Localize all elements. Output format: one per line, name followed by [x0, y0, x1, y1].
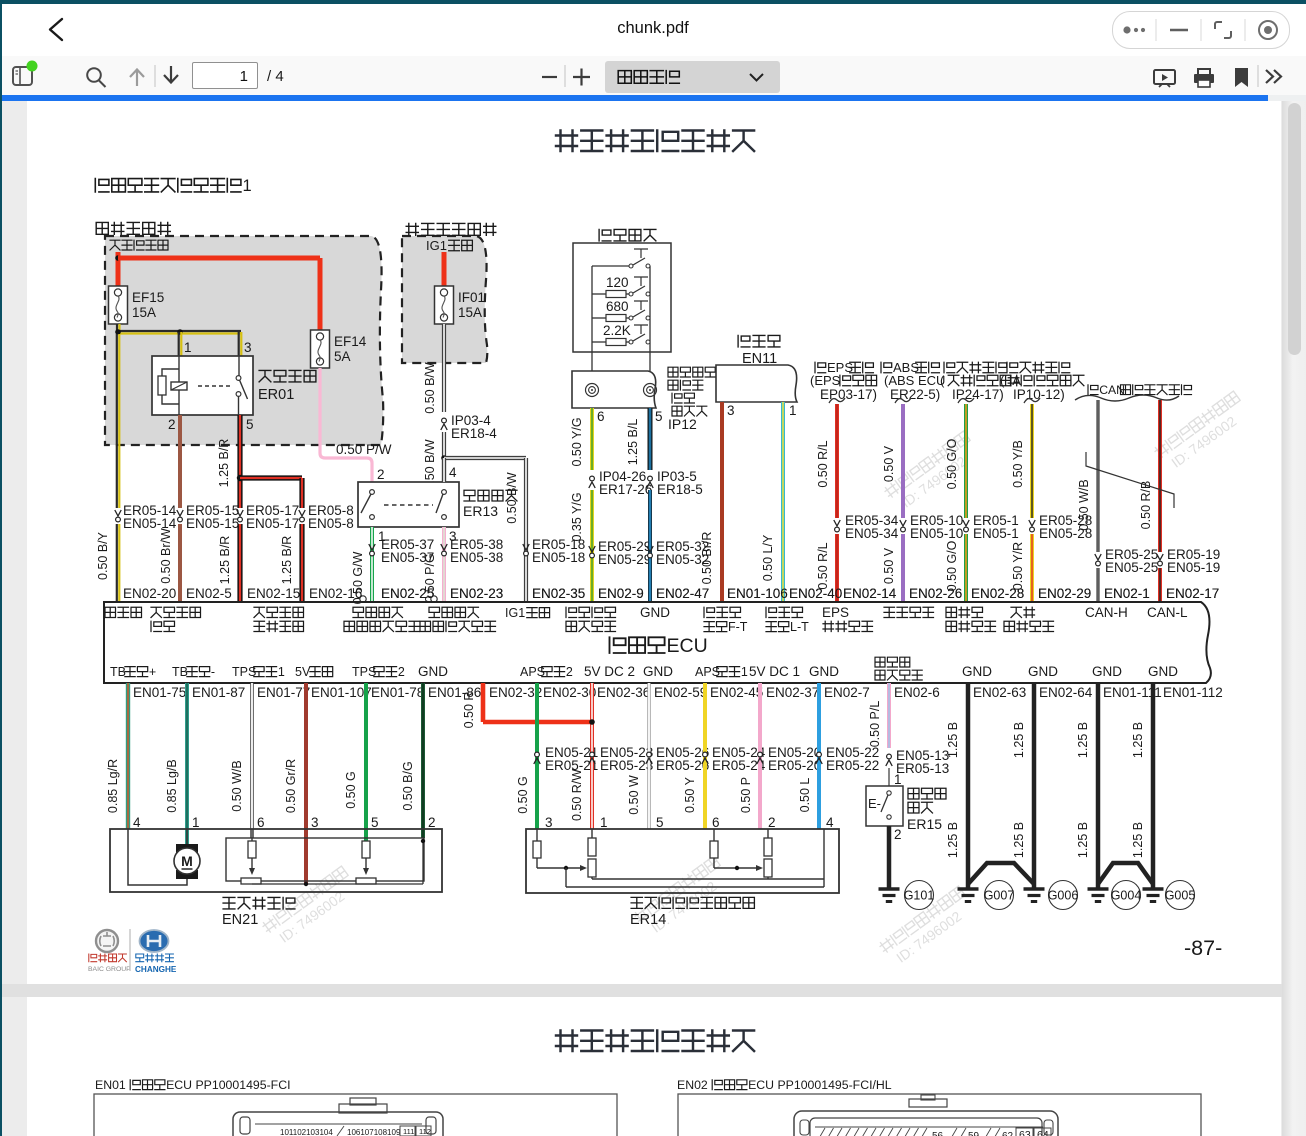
- svg-text:EF14: EF14: [334, 334, 367, 349]
- svg-text:ER15: ER15: [907, 816, 942, 832]
- svg-text:0.85 Lg/B: 0.85 Lg/B: [165, 759, 179, 813]
- svg-text:3: 3: [244, 340, 252, 355]
- svg-text:EN02-26: EN02-26: [909, 586, 962, 601]
- svg-text:EN02-29: EN02-29: [1038, 586, 1091, 601]
- svg-text:EN05-1: EN05-1: [973, 526, 1019, 541]
- svg-text:5: 5: [371, 815, 379, 830]
- svg-text:2.2K: 2.2K: [603, 323, 631, 338]
- svg-text:0.50 L: 0.50 L: [798, 778, 812, 813]
- svg-text:0.50 Br/W: 0.50 Br/W: [159, 528, 173, 584]
- svg-text:3: 3: [727, 403, 735, 418]
- svg-text:0.50 R/B: 0.50 R/B: [1139, 481, 1153, 530]
- svg-text:(ABS ECU: (ABS ECU: [884, 373, 945, 388]
- svg-text:0.50 Y/R: 0.50 Y/R: [1011, 542, 1025, 590]
- svg-text:2: 2: [377, 467, 385, 482]
- svg-text:-: -: [211, 665, 215, 679]
- svg-text:(: (: [1000, 373, 1005, 388]
- svg-text:EN01-77: EN01-77: [257, 685, 310, 700]
- svg-text:+: +: [149, 665, 156, 679]
- svg-text:EN01: EN01: [95, 1078, 126, 1092]
- svg-text:EN05-38: EN05-38: [450, 550, 503, 565]
- svg-text:L-T: L-T: [790, 620, 809, 634]
- svg-text:EN02-35: EN02-35: [532, 586, 585, 601]
- svg-text:G007: G007: [984, 889, 1015, 903]
- svg-text:TB: TB: [172, 665, 188, 679]
- svg-text:GND: GND: [1148, 664, 1178, 679]
- svg-text:0.50 B/Y: 0.50 B/Y: [96, 531, 110, 580]
- svg-text:0.50 R/L: 0.50 R/L: [816, 440, 830, 487]
- svg-text:112: 112: [419, 1127, 431, 1136]
- svg-text:EP03-17): EP03-17): [820, 387, 877, 402]
- svg-text:1.25 B: 1.25 B: [1076, 722, 1090, 758]
- svg-text:GND: GND: [1092, 664, 1122, 679]
- svg-text:111: 111: [403, 1127, 414, 1136]
- svg-text:ER05-22: ER05-22: [826, 758, 879, 773]
- svg-text:120: 120: [606, 275, 629, 290]
- svg-text:IF01: IF01: [458, 290, 485, 305]
- svg-text:EN02-16: EN02-16: [309, 586, 362, 601]
- svg-text:EN21: EN21: [222, 912, 258, 928]
- svg-text:1.25 B: 1.25 B: [946, 822, 960, 858]
- svg-text:3: 3: [545, 815, 553, 830]
- svg-text:EPS: EPS: [822, 605, 849, 620]
- svg-text:EN02-63: EN02-63: [973, 685, 1026, 700]
- svg-text:ER01: ER01: [258, 387, 294, 403]
- svg-text:1: 1: [894, 772, 902, 787]
- svg-text:5A: 5A: [334, 349, 351, 364]
- svg-text:EN02-17: EN02-17: [1166, 586, 1219, 601]
- svg-text:ER14: ER14: [630, 912, 666, 928]
- svg-text:EN05-17: EN05-17: [246, 516, 299, 531]
- svg-text:0.50 Y: 0.50 Y: [683, 776, 697, 813]
- svg-text:(EPS: (EPS: [810, 373, 841, 388]
- svg-text:1.25 B/R: 1.25 B/R: [280, 536, 294, 585]
- svg-text:15A: 15A: [458, 305, 482, 320]
- svg-text:EN02-14: EN02-14: [843, 586, 897, 601]
- svg-text:EN05-29: EN05-29: [598, 552, 651, 567]
- svg-text:EN02-36: EN02-36: [597, 685, 650, 700]
- svg-text:3: 3: [311, 815, 319, 830]
- svg-text:1.25 B/L: 1.25 B/L: [626, 419, 640, 466]
- svg-text:GND: GND: [809, 664, 839, 679]
- svg-text:5: 5: [655, 409, 663, 424]
- svg-text:EN01-87: EN01-87: [192, 685, 245, 700]
- svg-text:EN02-59: EN02-59: [654, 685, 707, 700]
- svg-text:0.50 R/W: 0.50 R/W: [570, 769, 584, 821]
- svg-text:G006: G006: [1048, 889, 1079, 903]
- svg-text:EN01-107: EN01-107: [311, 685, 372, 700]
- svg-text:EN01-106: EN01-106: [727, 586, 788, 601]
- svg-text:TB: TB: [110, 665, 126, 679]
- svg-text:ER05-26: ER05-26: [656, 758, 709, 773]
- svg-text:5V: 5V: [295, 665, 311, 679]
- svg-text:GND: GND: [1028, 664, 1058, 679]
- svg-text:EN02-1: EN02-1: [1104, 586, 1150, 601]
- svg-text:1: 1: [184, 340, 192, 355]
- svg-text:(: (: [940, 373, 945, 388]
- svg-text:2: 2: [398, 665, 405, 679]
- svg-text:1: 1: [741, 665, 748, 679]
- svg-text:0.50 R: 0.50 R: [462, 692, 476, 729]
- svg-text:EN01-78: EN01-78: [371, 685, 424, 700]
- svg-text:EN02-37: EN02-37: [766, 685, 819, 700]
- svg-text:0.50 Y/G: 0.50 Y/G: [570, 417, 584, 466]
- svg-text:2: 2: [168, 417, 176, 432]
- svg-text:56: 56: [932, 1131, 944, 1136]
- svg-text:2: 2: [768, 815, 776, 830]
- svg-text:0.50 W/B: 0.50 W/B: [230, 760, 244, 811]
- svg-text:0.50 Gr/R: 0.50 Gr/R: [284, 759, 298, 813]
- svg-text:1.25 B/R: 1.25 B/R: [218, 536, 232, 585]
- svg-text:4: 4: [133, 815, 141, 830]
- svg-text:EN02-23: EN02-23: [450, 586, 503, 601]
- svg-text:EN05-34: EN05-34: [845, 526, 899, 541]
- svg-text:0.50 V: 0.50 V: [882, 547, 896, 584]
- svg-text:6: 6: [712, 815, 720, 830]
- svg-text:EN02-6: EN02-6: [894, 685, 940, 700]
- svg-text:4: 4: [826, 815, 834, 830]
- svg-text:EN02-15: EN02-15: [247, 586, 300, 601]
- svg-text:0.50 Y/B: 0.50 Y/B: [1011, 440, 1025, 488]
- svg-text:5V DC 2: 5V DC 2: [584, 664, 635, 679]
- svg-text:IP12: IP12: [668, 416, 697, 432]
- svg-text:TPS: TPS: [232, 665, 256, 679]
- svg-text:1.25 B: 1.25 B: [1012, 822, 1026, 858]
- svg-text:EN01-75: EN01-75: [133, 685, 186, 700]
- svg-text:15A: 15A: [132, 305, 156, 320]
- svg-text:IG1: IG1: [426, 238, 447, 253]
- svg-text:0.50 L/Y: 0.50 L/Y: [761, 534, 775, 581]
- svg-text:680: 680: [606, 299, 629, 314]
- svg-text:ER05-13: ER05-13: [896, 761, 949, 776]
- svg-text:EN02-25: EN02-25: [381, 586, 434, 601]
- svg-text:64: 64: [1037, 1129, 1049, 1136]
- svg-text:EN05-10: EN05-10: [910, 526, 963, 541]
- svg-text:GND: GND: [643, 664, 673, 679]
- svg-text:5: 5: [656, 815, 664, 830]
- svg-text:2: 2: [428, 815, 436, 830]
- svg-text:ER05-20: ER05-20: [768, 758, 821, 773]
- svg-text:1.25 B/R: 1.25 B/R: [217, 439, 231, 488]
- svg-text:ER18-5: ER18-5: [657, 482, 703, 497]
- svg-text:BAIC GROUP: BAIC GROUP: [88, 966, 131, 973]
- svg-text:0.50 G/O: 0.50 G/O: [945, 438, 959, 489]
- svg-text:EN02-7: EN02-7: [824, 685, 870, 700]
- svg-text:M: M: [181, 853, 193, 869]
- svg-text:6: 6: [597, 409, 605, 424]
- svg-text:0.50 Br/R: 0.50 Br/R: [700, 532, 714, 585]
- svg-text:0.85 Lg/R: 0.85 Lg/R: [106, 759, 120, 813]
- svg-text:2: 2: [894, 827, 902, 842]
- svg-text:EN02-30: EN02-30: [543, 685, 596, 700]
- svg-text:0.50 G: 0.50 G: [344, 771, 358, 809]
- svg-text:0.50 W/B: 0.50 W/B: [1077, 479, 1091, 530]
- svg-text:E-: E-: [868, 796, 881, 811]
- svg-text:EN02-9: EN02-9: [598, 586, 644, 601]
- svg-text:ER05-23: ER05-23: [600, 758, 653, 773]
- svg-text:GND: GND: [418, 664, 448, 679]
- svg-text:0.50 W: 0.50 W: [627, 775, 641, 815]
- svg-text:0.50 G: 0.50 G: [516, 776, 530, 814]
- svg-text:IG1: IG1: [505, 606, 525, 620]
- svg-text:-87-: -87-: [1184, 936, 1222, 960]
- svg-text:EN01-112: EN01-112: [1163, 685, 1223, 700]
- svg-text:1.25 B: 1.25 B: [1076, 822, 1090, 858]
- svg-text:ER13: ER13: [463, 503, 498, 519]
- svg-text:0.50 R/L: 0.50 R/L: [816, 542, 830, 589]
- svg-text:EN02-40: EN02-40: [789, 586, 842, 601]
- svg-text:EN02: EN02: [677, 1078, 708, 1092]
- svg-text:0.50 P/W: 0.50 P/W: [336, 442, 392, 457]
- svg-text:EN05-25: EN05-25: [1105, 560, 1158, 575]
- svg-text:EN02-47: EN02-47: [656, 586, 709, 601]
- svg-text:ER05-24: ER05-24: [712, 758, 766, 773]
- svg-text:1: 1: [789, 403, 797, 418]
- svg-text:0.50 B/W: 0.50 B/W: [505, 472, 519, 524]
- svg-text:EN05-15: EN05-15: [186, 516, 239, 531]
- svg-text:0.50 V: 0.50 V: [882, 445, 896, 482]
- svg-text:ECU PP10001495-FCI: ECU PP10001495-FCI: [166, 1078, 290, 1092]
- svg-text:1.25 B: 1.25 B: [1131, 822, 1145, 858]
- svg-text:ER17-26: ER17-26: [599, 482, 652, 497]
- svg-text:1.25 B: 1.25 B: [1131, 722, 1145, 758]
- svg-text:ER18-4: ER18-4: [451, 426, 497, 441]
- svg-text:CHANGHE: CHANGHE: [135, 965, 177, 974]
- svg-text:4: 4: [449, 465, 457, 480]
- svg-text:EN05-19: EN05-19: [1167, 560, 1220, 575]
- svg-text:62: 62: [1002, 1131, 1014, 1136]
- svg-text:EN05-18: EN05-18: [532, 550, 585, 565]
- svg-text:63: 63: [1019, 1129, 1031, 1136]
- svg-text:ECU PP10001495-FCI/HL: ECU PP10001495-FCI/HL: [748, 1078, 892, 1092]
- svg-text:EN02-64: EN02-64: [1039, 685, 1093, 700]
- svg-text:0.35 Y/G: 0.35 Y/G: [570, 492, 584, 541]
- svg-text:CAN-H: CAN-H: [1085, 605, 1128, 620]
- svg-text:6: 6: [257, 815, 265, 830]
- svg-text:1: 1: [243, 177, 252, 195]
- svg-text:F-T: F-T: [728, 620, 748, 634]
- svg-text:2: 2: [566, 665, 573, 679]
- svg-text:0.50 P/L: 0.50 P/L: [868, 701, 882, 748]
- svg-text:G004: G004: [1111, 889, 1142, 903]
- svg-text:101102103104: 101102103104: [280, 1128, 333, 1136]
- svg-text:1: 1: [278, 665, 285, 679]
- svg-text:GND: GND: [640, 605, 670, 620]
- svg-text:1.25 B: 1.25 B: [1012, 722, 1026, 758]
- svg-text:106107108109: 106107108109: [347, 1128, 401, 1136]
- svg-text:ECU: ECU: [667, 635, 708, 657]
- svg-text:0.50 B/G: 0.50 B/G: [401, 761, 415, 810]
- svg-text:EF15: EF15: [132, 290, 164, 305]
- svg-text:CAN-L: CAN-L: [1147, 605, 1188, 620]
- svg-text:EN05-8: EN05-8: [308, 516, 354, 531]
- svg-text:G005: G005: [1165, 889, 1196, 903]
- svg-text:59: 59: [968, 1131, 980, 1136]
- svg-text:TPS: TPS: [352, 665, 376, 679]
- svg-text:EN02-32: EN02-32: [489, 685, 542, 700]
- svg-text:1: 1: [600, 815, 608, 830]
- svg-text:5: 5: [246, 417, 254, 432]
- svg-text:0.50 B/W: 0.50 B/W: [423, 362, 437, 414]
- svg-text:EN02-28: EN02-28: [971, 586, 1024, 601]
- svg-text:0.50 P: 0.50 P: [739, 777, 753, 813]
- svg-text:EN02-45: EN02-45: [710, 685, 763, 700]
- svg-text:EN02-20: EN02-20: [123, 586, 176, 601]
- svg-text:1.25 B: 1.25 B: [946, 722, 960, 758]
- svg-text:EN02-5: EN02-5: [186, 586, 232, 601]
- svg-text:GND: GND: [962, 664, 992, 679]
- svg-text:5V DC 1: 5V DC 1: [749, 664, 800, 679]
- svg-text:1: 1: [192, 815, 200, 830]
- svg-text:0.50 G/O: 0.50 G/O: [945, 540, 959, 591]
- svg-text:G101: G101: [904, 889, 935, 903]
